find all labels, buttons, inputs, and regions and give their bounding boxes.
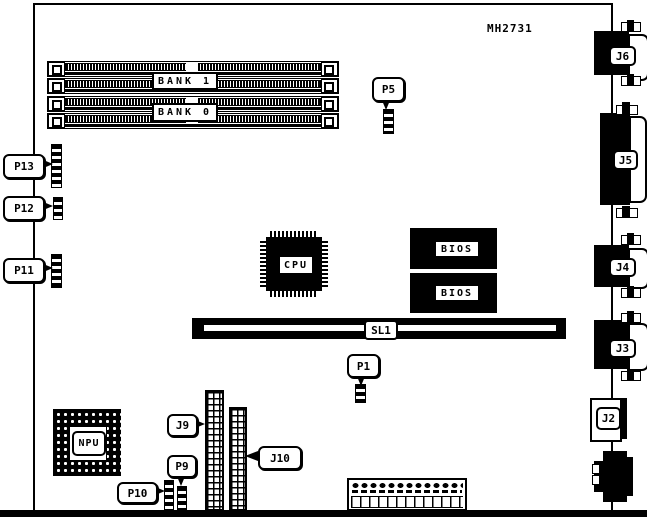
j3-label: J3 bbox=[609, 339, 636, 358]
sl1-label: SL1 bbox=[364, 320, 398, 340]
p5-callout: P5 bbox=[372, 77, 405, 102]
power-connector bbox=[347, 478, 467, 511]
p12-callout: P12 bbox=[3, 196, 45, 221]
bios-top-label: BIOS bbox=[434, 240, 480, 258]
bios-bottom-label: BIOS bbox=[434, 284, 480, 302]
p10-header bbox=[164, 480, 174, 510]
j10-pointer-icon bbox=[245, 451, 258, 461]
motherboard-diagram: MH2731 BANK 1 BANK 0 P13 P12 P11 bbox=[0, 0, 647, 519]
simm-clip-icon bbox=[321, 79, 338, 93]
simm-clip-icon bbox=[48, 97, 65, 111]
p5-header bbox=[383, 109, 394, 134]
board-bottom-edge bbox=[0, 510, 647, 517]
j9-callout: J9 bbox=[167, 414, 198, 437]
part-number: MH2731 bbox=[487, 22, 533, 35]
cpu-label: CPU bbox=[278, 255, 314, 275]
p1-header bbox=[355, 384, 366, 403]
npu-label: NPU bbox=[72, 431, 106, 456]
simm-clip-icon bbox=[321, 62, 338, 76]
bank0-label: BANK 0 bbox=[152, 103, 218, 122]
simm-clip-icon bbox=[48, 79, 65, 93]
p10-callout: P10 bbox=[117, 482, 158, 504]
j2-label: J2 bbox=[596, 407, 621, 430]
simm-clip-icon bbox=[321, 114, 338, 128]
j4-label: J4 bbox=[609, 258, 636, 277]
bios-chip-bottom: BIOS bbox=[410, 273, 497, 313]
simm-clip-icon bbox=[321, 97, 338, 111]
p1-callout: P1 bbox=[347, 354, 380, 378]
bank1-label: BANK 1 bbox=[152, 72, 218, 90]
keyboard-din-connector bbox=[603, 451, 627, 502]
j5-label: J5 bbox=[613, 150, 638, 170]
cpu-chip: CPU bbox=[260, 231, 328, 297]
bios-chip-top: BIOS bbox=[410, 228, 497, 269]
p9-callout: P9 bbox=[167, 455, 197, 478]
j10-callout: J10 bbox=[258, 446, 302, 470]
j6-label: J6 bbox=[609, 46, 636, 66]
npu-socket: NPU bbox=[53, 409, 121, 476]
p12-header bbox=[53, 197, 63, 220]
sl1-slot: SL1 bbox=[192, 318, 566, 339]
simm-clip-icon bbox=[48, 62, 65, 76]
simm-clip-icon bbox=[48, 114, 65, 128]
p9-header bbox=[177, 486, 187, 510]
p11-callout: P11 bbox=[3, 258, 45, 283]
j9-header bbox=[205, 390, 224, 511]
p13-callout: P13 bbox=[3, 154, 45, 179]
